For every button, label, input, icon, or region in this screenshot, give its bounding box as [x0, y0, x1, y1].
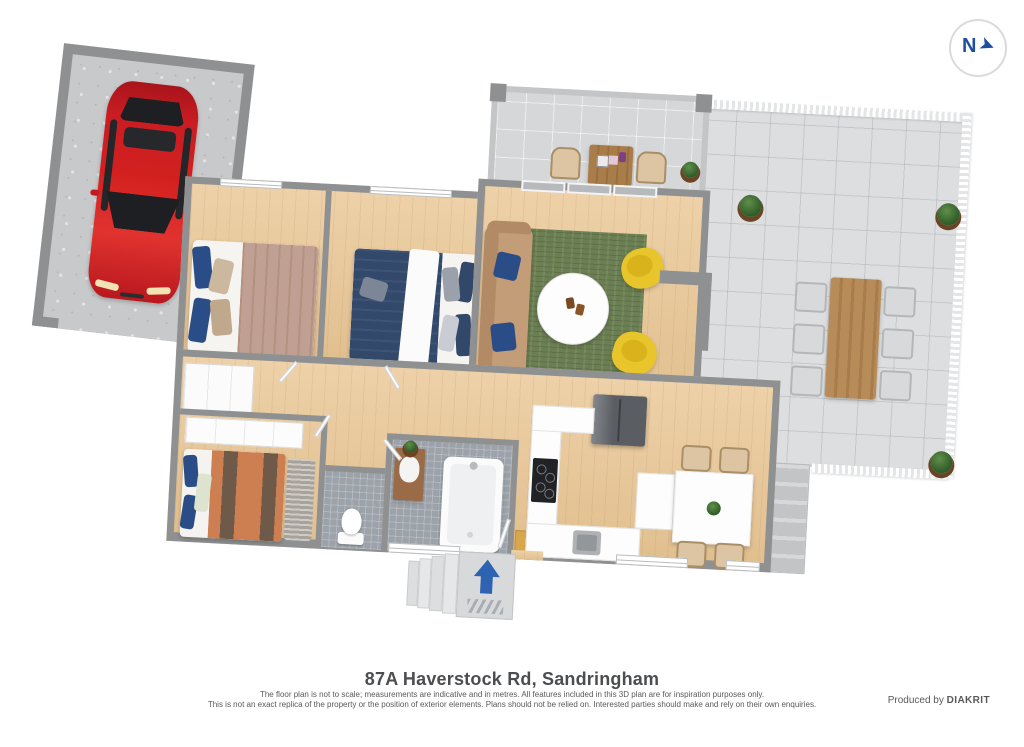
rear-rooms — [166, 349, 780, 572]
entry-arrow-icon — [473, 559, 501, 596]
pillow — [188, 297, 213, 343]
cup — [565, 297, 575, 309]
outdoor-chair — [792, 323, 826, 355]
compass-arrow-icon: ➤ — [975, 32, 998, 59]
pillow — [442, 267, 461, 302]
fridge — [591, 394, 648, 447]
outdoor-chair — [790, 365, 824, 397]
outdoor-chair — [879, 370, 913, 402]
pillow — [210, 299, 233, 337]
toilet — [337, 508, 365, 545]
terrace-fence-bottom — [812, 464, 948, 480]
bedroom-window — [220, 178, 282, 189]
property-address-title: 87A Haverstock Rd, Sandringham — [0, 669, 1024, 690]
sliding-door-pane — [521, 180, 566, 193]
double-bed-orange — [180, 449, 286, 542]
bathroom — [387, 440, 513, 557]
meals-chair — [719, 447, 750, 475]
bathtub — [439, 456, 504, 553]
built-in-robe — [184, 417, 303, 449]
hall-cupboard — [182, 363, 254, 415]
compass: N ➤ — [949, 19, 1007, 77]
bedroom-window — [370, 186, 452, 198]
produced-by-prefix: Produced by — [888, 695, 944, 706]
courtyard-coffee-table — [588, 144, 634, 186]
porch-step — [406, 561, 419, 607]
car-sunroof — [123, 127, 177, 153]
car-mirror — [90, 189, 100, 196]
shag-rug — [284, 458, 316, 541]
outdoor-dining-table — [825, 277, 882, 400]
pillow — [208, 258, 235, 296]
vanity-plant — [404, 440, 417, 453]
wc — [321, 471, 385, 550]
potted-plant — [739, 194, 762, 217]
double-bed-mauve — [187, 240, 319, 358]
rear-window — [726, 560, 760, 572]
front-bedrooms — [176, 176, 487, 374]
meals-chair — [681, 445, 712, 473]
car-headlight — [94, 279, 119, 292]
outdoor-chair — [881, 328, 915, 360]
porch-doormat — [467, 599, 504, 615]
sliding-door-pane — [613, 185, 658, 198]
compass-north-label: N — [962, 35, 976, 58]
courtyard-chair — [550, 146, 582, 180]
outdoor-chair — [794, 281, 828, 313]
car-headlight — [147, 287, 171, 295]
floor-plan — [5, 25, 995, 664]
table-plant — [706, 501, 721, 516]
cup — [575, 303, 585, 316]
produced-by: Produced by DIAKRIT — [888, 695, 990, 706]
car-windshield — [103, 191, 181, 235]
kitchen-counter-top — [532, 405, 595, 434]
car-rear-window — [119, 96, 187, 127]
outdoor-chair — [883, 286, 917, 318]
sofa-cushion — [490, 322, 517, 352]
producer-name: DIAKRIT — [947, 695, 990, 706]
sofa — [477, 226, 533, 378]
kitchen-sink — [572, 530, 601, 555]
cooktop — [531, 458, 558, 503]
potted-plant — [682, 161, 699, 178]
terrace-fence-top — [699, 99, 967, 122]
double-bed-navy — [349, 248, 479, 366]
sofa-cushion — [493, 251, 522, 282]
disclaimer-line-1: The floor plan is not to scale; measurem… — [0, 690, 1024, 699]
sliding-door-pane — [567, 182, 612, 195]
entry-porch — [456, 551, 516, 620]
courtyard-chair — [636, 151, 668, 185]
terrace-fence-right — [944, 113, 972, 479]
kitchen-peninsula — [635, 472, 676, 530]
meals-table — [672, 470, 754, 546]
disclaimer-line-2: This is not an exact replica of the prop… — [0, 700, 1024, 709]
